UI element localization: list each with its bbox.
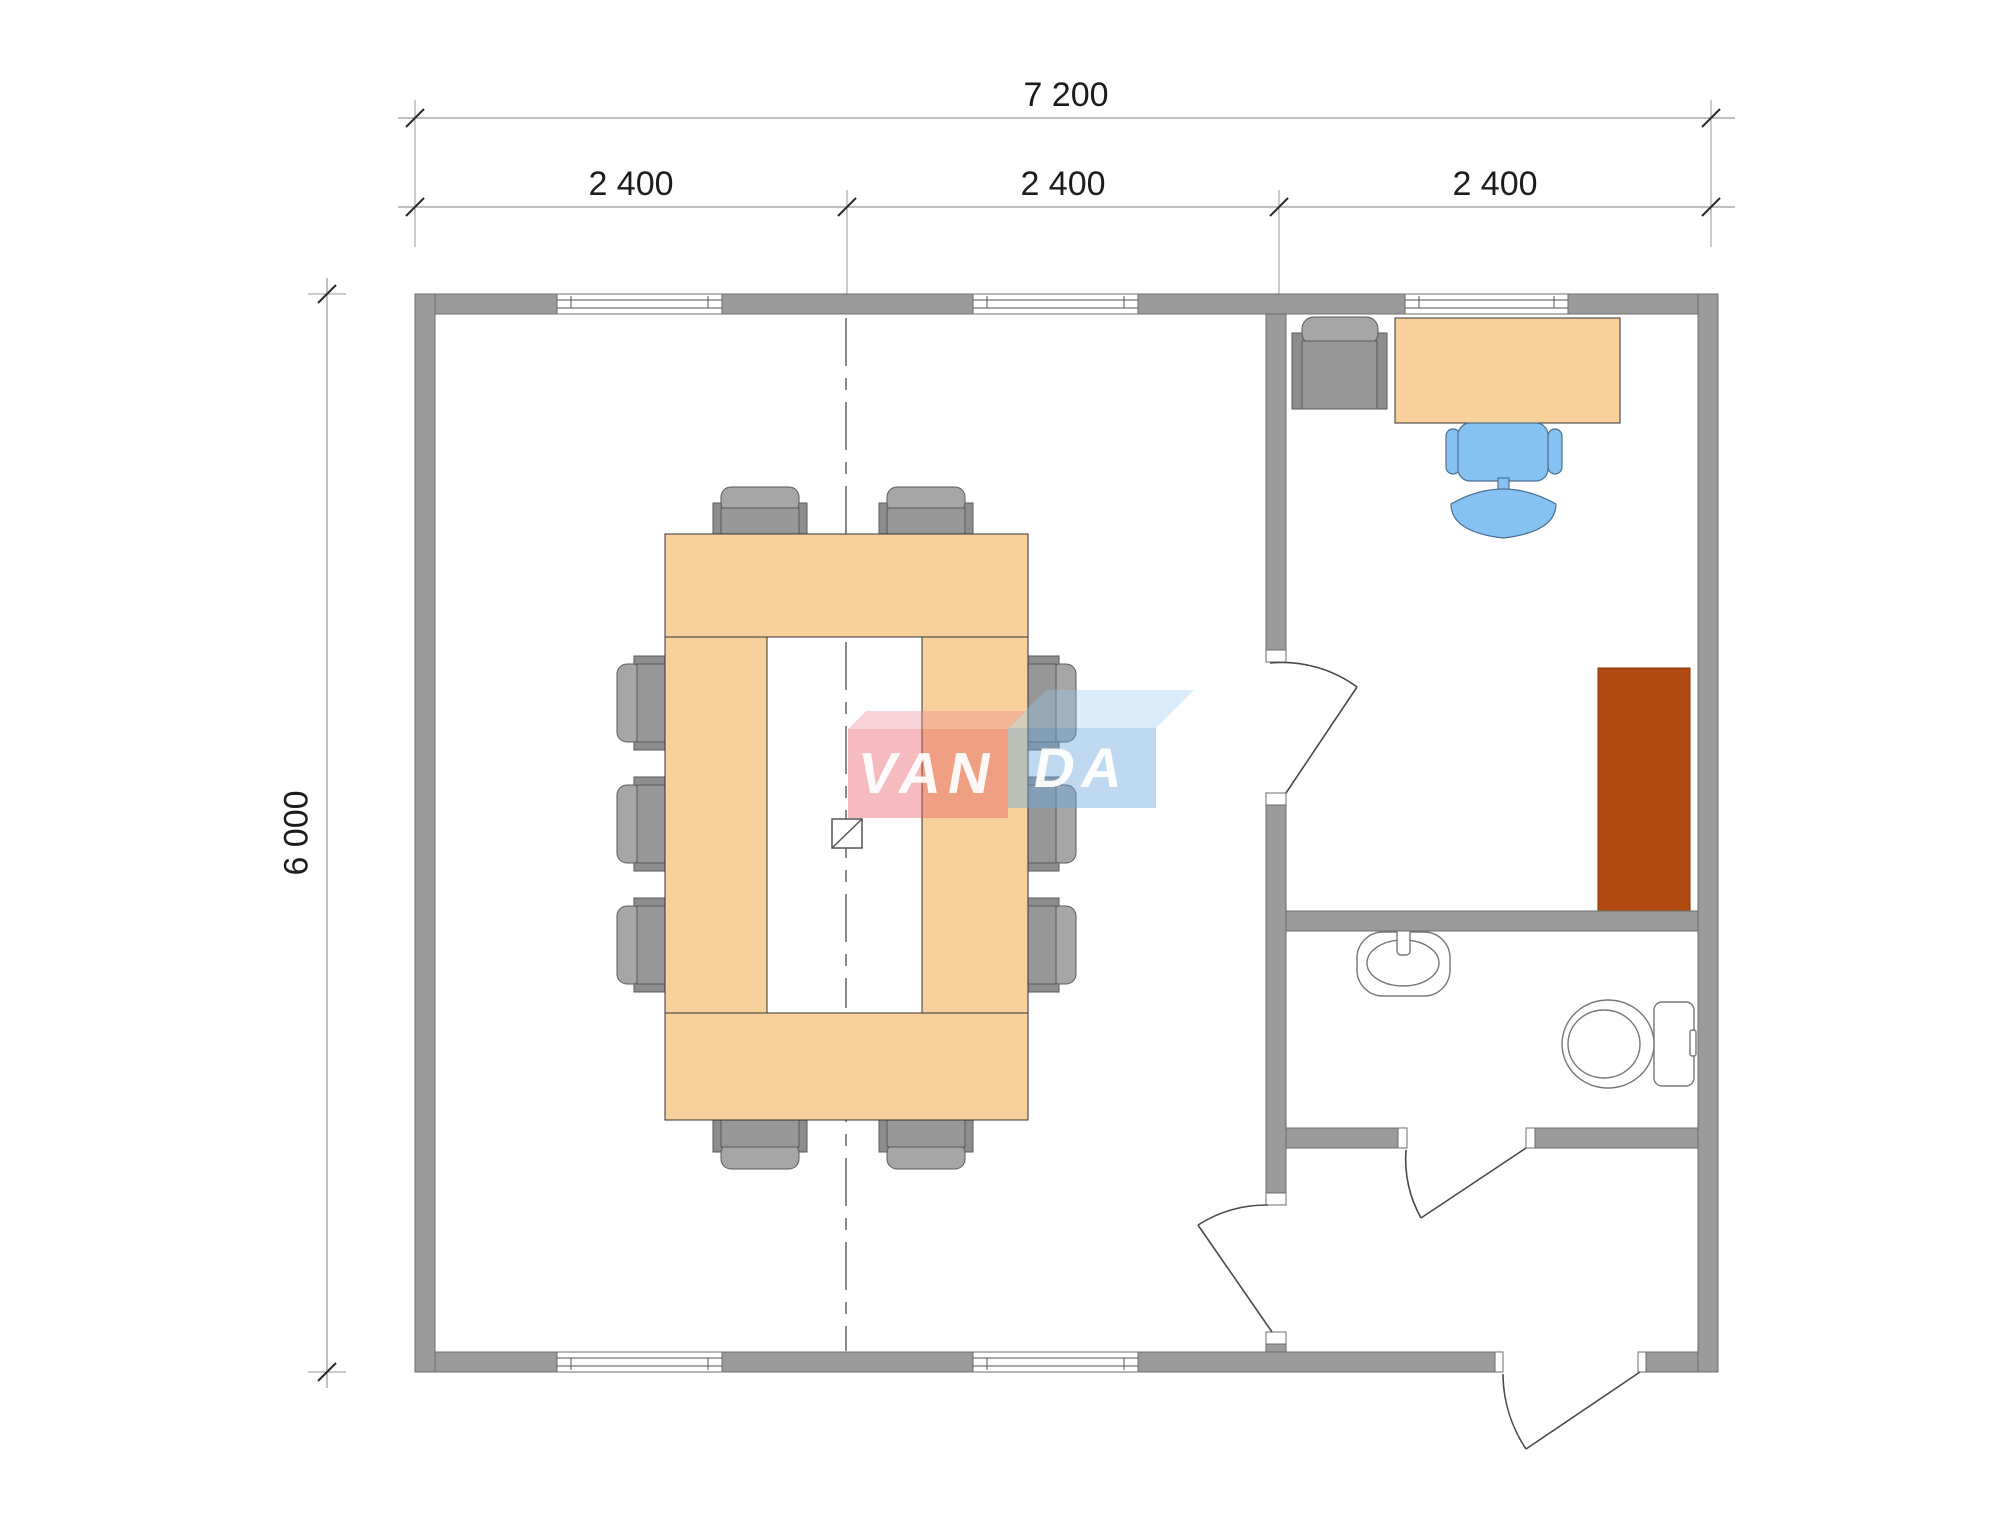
office-armchair bbox=[1292, 317, 1387, 409]
chair-seat bbox=[887, 508, 965, 535]
conference-chair bbox=[1027, 898, 1076, 992]
conference-chair bbox=[713, 1120, 807, 1169]
chair-seat bbox=[721, 1120, 799, 1147]
toilet-button bbox=[1690, 1030, 1696, 1056]
conference-chair bbox=[617, 656, 666, 750]
interior-wall-vertical bbox=[1266, 805, 1286, 1193]
vanda-logo-watermark: VAN DA bbox=[846, 686, 1158, 824]
logo-text-right: DA bbox=[1001, 728, 1163, 808]
dim-label-module-2: 2 400 bbox=[1020, 165, 1105, 204]
conference-chair bbox=[617, 898, 666, 992]
dim-label-total-height: 6 000 bbox=[278, 790, 317, 875]
entrance-door bbox=[1503, 1372, 1640, 1449]
chair-back bbox=[1451, 489, 1556, 538]
chair-seat bbox=[1458, 423, 1548, 481]
door-jamb bbox=[1638, 1352, 1646, 1372]
door-jamb bbox=[1495, 1352, 1503, 1372]
door-jamb bbox=[1266, 1332, 1286, 1344]
logo-text-left: VAN bbox=[840, 729, 1016, 818]
meeting-room-door bbox=[1198, 1205, 1272, 1332]
door-jamb bbox=[1266, 793, 1286, 805]
entrance-opening bbox=[1495, 1351, 1646, 1373]
office-door bbox=[1270, 662, 1357, 793]
door-jamb bbox=[1398, 1128, 1407, 1148]
door-jamb bbox=[1266, 1193, 1286, 1205]
dim-label-module-3: 2 400 bbox=[1452, 165, 1537, 204]
interior-wall-vertical bbox=[1266, 1344, 1286, 1352]
chair-seat bbox=[637, 785, 665, 863]
door-jamb bbox=[1526, 1128, 1535, 1148]
office-desk bbox=[1395, 318, 1620, 423]
logo-red-box-top-face bbox=[848, 711, 1026, 729]
interior-wall-vertical bbox=[1266, 314, 1286, 650]
interior-wall-horizontal bbox=[1286, 911, 1698, 931]
storage-cabinet bbox=[1598, 668, 1690, 911]
chair-seat bbox=[637, 906, 665, 984]
dim-label-total-width: 7 200 bbox=[1023, 76, 1108, 115]
sink bbox=[1357, 925, 1450, 996]
chair-connector bbox=[1498, 478, 1509, 490]
conference-chair bbox=[879, 487, 973, 535]
chair-seat bbox=[721, 508, 799, 535]
conference-chair bbox=[617, 777, 666, 871]
window bbox=[557, 1352, 722, 1372]
floor-plan-canvas: 7 200 2 400 2 400 2 400 6 000 VAN DA bbox=[0, 0, 2000, 1516]
bathroom-door bbox=[1406, 1148, 1526, 1218]
bathroom-fixtures bbox=[1357, 925, 1696, 1088]
exterior-wall-right bbox=[1698, 294, 1718, 1372]
office-task-chair bbox=[1446, 423, 1562, 538]
conference-chair bbox=[879, 1120, 973, 1169]
chair-seat bbox=[637, 664, 665, 742]
office-furniture bbox=[1292, 317, 1690, 911]
toilet-bowl-inner bbox=[1568, 1010, 1640, 1078]
interior-wall-horizontal bbox=[1535, 1128, 1698, 1148]
chair-seat bbox=[887, 1120, 965, 1147]
interior-wall-horizontal bbox=[1286, 1128, 1398, 1148]
window bbox=[973, 294, 1138, 314]
exterior-wall-left bbox=[415, 294, 435, 1372]
door-jamb bbox=[1266, 650, 1286, 662]
chair-seat bbox=[1028, 906, 1056, 984]
logo-red-box-front-face: VAN bbox=[848, 729, 1008, 818]
meeting-room-furniture bbox=[617, 487, 1076, 1169]
conference-chair bbox=[713, 487, 807, 535]
window bbox=[557, 294, 722, 314]
chair-seat bbox=[1302, 341, 1377, 409]
chair-armrest bbox=[1548, 429, 1562, 474]
toilet bbox=[1562, 1000, 1696, 1088]
toilet-tank bbox=[1654, 1002, 1694, 1086]
logo-blue-box-front-face: DA bbox=[1008, 728, 1156, 808]
window bbox=[1405, 294, 1568, 314]
dim-label-module-1: 2 400 bbox=[588, 165, 673, 204]
window bbox=[973, 1352, 1138, 1372]
